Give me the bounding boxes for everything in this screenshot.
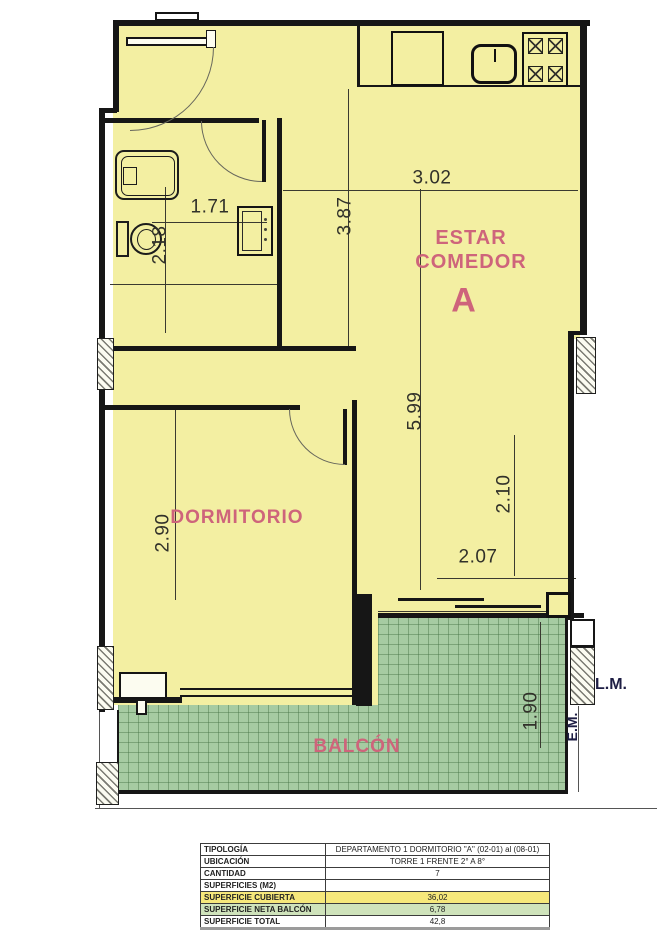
balcony-sill xyxy=(378,611,570,612)
service-niche xyxy=(570,619,595,647)
bathtub xyxy=(115,150,179,200)
wall-bedroom-top xyxy=(99,405,300,410)
sink-faucet xyxy=(494,49,496,62)
wall-left-entry xyxy=(113,20,119,112)
dim-label: 3.02 xyxy=(413,169,452,188)
row-label: TIPOLOGÍA xyxy=(201,844,326,856)
refrigerator xyxy=(391,31,444,86)
table-row-balcony-area: SUPERFICIE NETA BALCÓN 6,78 xyxy=(201,904,550,916)
bathtub-drain xyxy=(123,167,137,185)
wall-right-lower xyxy=(568,335,574,620)
table-row: CANTIDAD 7 xyxy=(201,868,550,880)
dim-label: 5.99 xyxy=(406,392,425,431)
row-label: SUPERFICIE NETA BALCÓN xyxy=(201,904,326,916)
party-wall-hatch xyxy=(576,337,596,394)
row-label: CANTIDAD xyxy=(201,868,326,880)
burner-icon xyxy=(528,66,543,82)
entry-door-leaf xyxy=(126,37,208,46)
toilet-tank xyxy=(116,221,129,257)
dim-label: 2.10 xyxy=(495,475,514,514)
dim-label: 1.90 xyxy=(522,692,541,731)
entry-step xyxy=(155,12,199,21)
wall-bath-bottom xyxy=(99,346,356,351)
balcony-sliding-door xyxy=(398,598,484,601)
row-value: TORRE 1 FRENTE 2° A 8° xyxy=(326,856,550,868)
wall-left xyxy=(99,112,105,712)
dim-line xyxy=(437,578,576,579)
lot-line-bottom xyxy=(95,808,657,809)
dim-label: 2.18 xyxy=(151,226,170,265)
vanity-basin xyxy=(242,211,262,251)
row-value xyxy=(326,880,550,892)
floor-plan-sheet: 1.71 2.18 3.02 3.87 5.99 2.10 2.90 2.07 … xyxy=(0,0,672,950)
column xyxy=(546,592,571,618)
spec-table: TIPOLOGÍA DEPARTAMENTO 1 DORMITORIO "A" … xyxy=(200,843,550,930)
table-row: SUPERFICIES (M2) xyxy=(201,880,550,892)
table-row: TIPOLOGÍA DEPARTAMENTO 1 DORMITORIO "A" … xyxy=(201,844,550,856)
balcony-sliding-door xyxy=(455,605,541,608)
table-row: UBICACIÓN TORRE 1 FRENTE 2° A 8° xyxy=(201,856,550,868)
burner-icon xyxy=(528,38,543,54)
row-value: 6,78 xyxy=(326,904,550,916)
row-value: 7 xyxy=(326,868,550,880)
row-label: UBICACIÓN xyxy=(201,856,326,868)
row-label: SUPERFICIES (M2) xyxy=(201,880,326,892)
unit-letter: A xyxy=(451,282,477,321)
dim-label: 1.71 xyxy=(191,198,230,217)
room-label-living: ESTAR COMEDOR xyxy=(391,226,551,274)
stove xyxy=(522,32,568,87)
table-row-covered-area: SUPERFICIE CUBIERTA 36,02 xyxy=(201,892,550,904)
row-value: 42,8 xyxy=(326,916,550,929)
burner-icon xyxy=(548,38,563,54)
row-value: DEPARTAMENTO 1 DORMITORIO "A" (02-01) al… xyxy=(326,844,550,856)
vanity xyxy=(237,206,273,256)
row-value: 36,02 xyxy=(326,892,550,904)
burner-icon xyxy=(548,66,563,82)
wall-right-upper xyxy=(580,20,587,335)
party-wall-hatch xyxy=(97,338,114,390)
room-label-living-line1: ESTAR xyxy=(391,226,551,250)
balcony-edge-bottom xyxy=(116,790,568,794)
room-label-living-line2: COMEDOR xyxy=(391,250,551,274)
dim-label: 2.07 xyxy=(459,548,498,567)
party-wall-hatch xyxy=(97,646,114,710)
wall-bath-right xyxy=(277,118,282,350)
dim-line xyxy=(110,284,280,285)
party-wall-hatch xyxy=(570,647,595,705)
bath-door-leaf xyxy=(262,120,266,182)
dim-line xyxy=(175,406,176,600)
dim-label: 3.87 xyxy=(336,197,355,236)
wall-kitchen-left xyxy=(357,22,360,86)
row-label: SUPERFICIE TOTAL xyxy=(201,916,326,929)
room-label-balcony: BALCÓN xyxy=(313,736,400,758)
room-label-bedroom: DORMITORIO xyxy=(170,507,303,529)
ac-unit xyxy=(119,672,167,699)
balcony-edge-right xyxy=(565,618,568,794)
dim-line xyxy=(283,190,578,191)
party-wall-hatch xyxy=(96,762,119,805)
door-jamb xyxy=(206,30,216,48)
kitchen-sink xyxy=(471,44,517,84)
party-axis-label: E.M. xyxy=(564,713,580,742)
row-label: SUPERFICIE CUBIERTA xyxy=(201,892,326,904)
table-row-total-area: SUPERFICIE TOTAL 42,8 xyxy=(201,916,550,929)
bedroom-window xyxy=(180,695,372,697)
ac-unit-stub xyxy=(136,699,147,715)
bedroom-window xyxy=(180,688,372,690)
municipal-line-label: L.M. xyxy=(595,676,627,694)
